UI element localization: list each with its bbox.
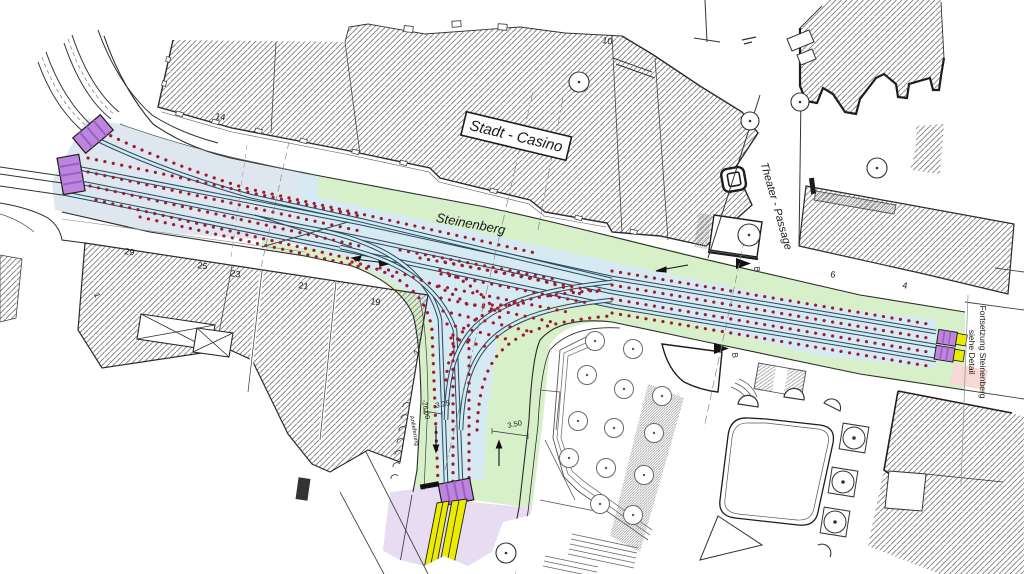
svg-text:19: 19: [370, 296, 381, 307]
svg-text:10: 10: [602, 35, 613, 46]
svg-text:siehe Detail: siehe Detail: [967, 330, 977, 375]
svg-text:25: 25: [197, 260, 208, 271]
svg-text:14: 14: [215, 111, 226, 122]
svg-text:21: 21: [298, 280, 309, 291]
svg-text:Fortsetzung Steinenberg: Fortsetzung Steinenberg: [978, 305, 988, 398]
svg-text:29: 29: [124, 246, 135, 257]
svg-text:23: 23: [230, 268, 241, 279]
